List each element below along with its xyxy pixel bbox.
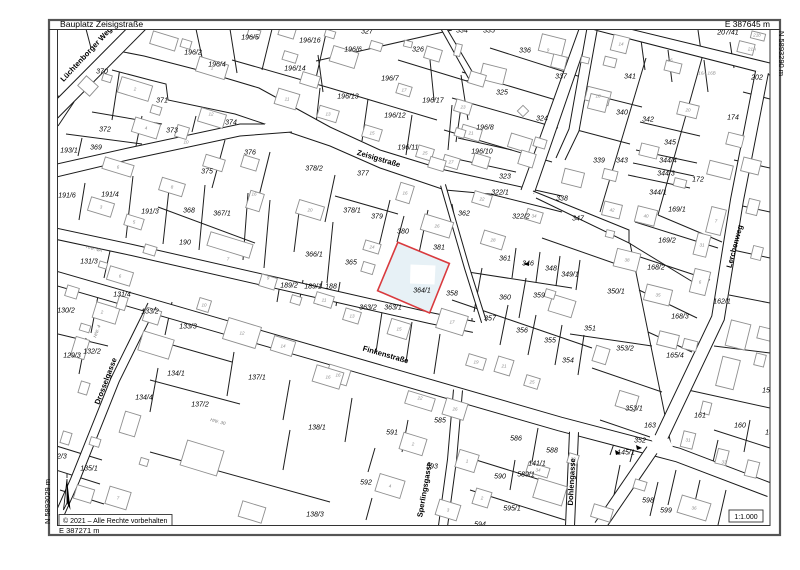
svg-text:38: 38 — [624, 258, 630, 263]
svg-text:376: 376 — [244, 150, 256, 157]
svg-text:138/1: 138/1 — [308, 425, 326, 432]
svg-text:169/1: 169/1 — [668, 207, 686, 214]
svg-text:16A 16B: 16A 16B — [698, 71, 715, 76]
svg-text:163: 163 — [644, 423, 656, 430]
svg-text:160: 160 — [734, 423, 746, 430]
svg-text:196/11: 196/11 — [398, 145, 419, 152]
svg-text:336: 336 — [519, 48, 531, 55]
svg-text:1: 1 — [211, 66, 214, 71]
svg-text:131/4: 131/4 — [113, 292, 131, 299]
svg-text:11: 11 — [322, 298, 327, 303]
svg-text:598: 598 — [642, 498, 654, 505]
svg-text:31: 31 — [685, 438, 691, 443]
svg-text:25: 25 — [528, 380, 535, 385]
svg-text:15: 15 — [396, 327, 402, 332]
svg-text:21b: 21b — [752, 33, 761, 38]
svg-text:168/2: 168/2 — [647, 265, 665, 272]
svg-text:338: 338 — [556, 196, 568, 203]
svg-text:196/14: 196/14 — [284, 66, 306, 73]
svg-text:585: 585 — [434, 418, 446, 425]
svg-text:161: 161 — [694, 413, 706, 420]
svg-text:341: 341 — [624, 74, 636, 81]
svg-text:189/2: 189/2 — [280, 283, 298, 290]
svg-text:589/1: 589/1 — [517, 472, 535, 479]
svg-text:14: 14 — [280, 344, 286, 349]
svg-text:362: 362 — [458, 211, 470, 218]
svg-text:134/4: 134/4 — [135, 395, 153, 402]
svg-text:373: 373 — [166, 128, 178, 135]
svg-text:© 2021 – Alle Rechte vorbehalt: © 2021 – Alle Rechte vorbehalten — [63, 517, 168, 525]
svg-text:8: 8 — [171, 185, 174, 190]
svg-text:190: 190 — [179, 240, 191, 247]
svg-text:2: 2 — [100, 310, 104, 315]
svg-text:349/1: 349/1 — [561, 272, 579, 279]
svg-text:19: 19 — [473, 360, 479, 365]
svg-text:322/2: 322/2 — [512, 214, 530, 221]
svg-text:196/2: 196/2 — [184, 50, 202, 57]
svg-text:196/16: 196/16 — [299, 38, 321, 45]
svg-text:22: 22 — [478, 197, 485, 202]
svg-text:12: 12 — [239, 331, 245, 336]
svg-text:351: 351 — [584, 326, 596, 333]
svg-text:343: 343 — [616, 158, 628, 165]
svg-text:344/1: 344/1 — [649, 190, 667, 197]
svg-text:E 387271 m: E 387271 m — [59, 526, 99, 535]
svg-text:2: 2 — [133, 87, 137, 92]
svg-text:Bauplatz Zeisigstraße: Bauplatz Zeisigstraße — [60, 19, 143, 29]
svg-text:133/3: 133/3 — [179, 324, 197, 331]
svg-text:354: 354 — [562, 358, 574, 365]
svg-text:16: 16 — [335, 373, 341, 378]
svg-text:40: 40 — [643, 214, 649, 219]
svg-text:13: 13 — [349, 314, 355, 319]
svg-text:137/1: 137/1 — [248, 375, 266, 382]
svg-text:168/3: 168/3 — [671, 314, 689, 321]
svg-text:366/1: 366/1 — [305, 252, 323, 259]
svg-text:323: 323 — [499, 174, 511, 181]
svg-text:353/1: 353/1 — [625, 406, 643, 413]
svg-text:16: 16 — [325, 375, 331, 380]
svg-text:586: 586 — [510, 436, 522, 443]
svg-text:20: 20 — [684, 108, 691, 113]
svg-text:592: 592 — [360, 480, 372, 487]
svg-text:N 5893290 m: N 5893290 m — [777, 31, 786, 76]
svg-text:23: 23 — [459, 105, 466, 110]
svg-text:372: 372 — [99, 127, 111, 134]
svg-text:368: 368 — [183, 208, 195, 215]
svg-text:134/1: 134/1 — [167, 371, 185, 378]
svg-text:9: 9 — [547, 48, 550, 53]
svg-text:191/3: 191/3 — [141, 209, 159, 216]
svg-text:17: 17 — [449, 320, 455, 325]
svg-text:10: 10 — [183, 140, 189, 145]
svg-text:21A: 21A — [747, 47, 756, 52]
svg-text:196/13: 196/13 — [337, 94, 359, 101]
svg-text:337: 337 — [555, 74, 568, 81]
svg-text:370: 370 — [96, 69, 108, 76]
svg-text:196/5: 196/5 — [241, 35, 259, 42]
svg-text:22: 22 — [416, 396, 423, 401]
svg-text:162/1: 162/1 — [713, 299, 731, 306]
svg-text:34: 34 — [531, 214, 537, 219]
svg-text:174: 174 — [727, 115, 739, 122]
svg-text:381: 381 — [433, 245, 445, 252]
svg-text:365: 365 — [345, 260, 357, 267]
svg-text:26: 26 — [433, 224, 440, 229]
svg-text:6: 6 — [699, 280, 702, 285]
svg-text:1: 1 — [466, 459, 469, 464]
svg-text:21: 21 — [500, 364, 507, 369]
svg-text:6: 6 — [117, 165, 120, 170]
svg-text:12: 12 — [208, 112, 214, 117]
svg-text:21: 21 — [467, 131, 474, 136]
svg-text:9: 9 — [267, 276, 270, 281]
svg-text:369: 369 — [90, 145, 102, 152]
svg-text:188: 188 — [325, 284, 337, 291]
svg-text:348: 348 — [545, 266, 557, 273]
svg-text:196/12: 196/12 — [384, 113, 406, 120]
svg-text:340: 340 — [616, 110, 628, 117]
svg-text:2: 2 — [411, 442, 415, 447]
svg-text:5: 5 — [133, 220, 136, 225]
svg-text:193/1: 193/1 — [60, 148, 78, 155]
svg-text:28: 28 — [489, 238, 496, 243]
svg-text:361: 361 — [499, 256, 511, 263]
svg-text:352: 352 — [634, 438, 646, 445]
svg-text:130/2: 130/2 — [57, 308, 75, 315]
svg-text:24: 24 — [368, 245, 375, 250]
svg-text:7: 7 — [117, 496, 120, 501]
svg-text:131/3: 131/3 — [80, 259, 98, 266]
svg-text:191/4: 191/4 — [101, 192, 119, 199]
svg-text:339: 339 — [593, 158, 605, 165]
svg-text:359: 359 — [533, 293, 545, 300]
svg-text:189/1: 189/1 — [304, 284, 322, 291]
svg-text:16: 16 — [667, 58, 673, 63]
svg-text:20: 20 — [306, 208, 313, 213]
svg-text:15: 15 — [369, 131, 375, 136]
svg-text:18: 18 — [595, 94, 601, 99]
svg-text:371: 371 — [156, 98, 168, 105]
svg-text:324: 324 — [536, 116, 548, 123]
svg-text:353/2: 353/2 — [616, 346, 634, 353]
svg-text:N 5893029 m: N 5893029 m — [43, 479, 52, 524]
svg-text:141/1: 141/1 — [528, 461, 546, 468]
svg-text:17: 17 — [401, 88, 407, 93]
svg-text:1:1.000: 1:1.000 — [734, 514, 757, 521]
svg-text:322/1: 322/1 — [491, 190, 509, 197]
svg-text:172: 172 — [692, 177, 704, 184]
svg-text:345: 345 — [664, 140, 676, 147]
svg-text:3: 3 — [100, 205, 103, 210]
svg-text:34: 34 — [535, 468, 541, 473]
svg-text:342: 342 — [642, 117, 654, 124]
svg-text:4: 4 — [389, 484, 392, 489]
svg-text:16: 16 — [402, 191, 408, 196]
svg-text:31: 31 — [699, 243, 705, 248]
svg-text:375: 375 — [201, 169, 213, 176]
svg-text:363/1: 363/1 — [384, 305, 402, 312]
svg-text:356: 356 — [516, 328, 528, 335]
svg-text:11: 11 — [285, 97, 290, 102]
svg-text:325: 325 — [496, 90, 508, 97]
svg-text:135/1: 135/1 — [80, 466, 98, 473]
svg-text:3: 3 — [447, 508, 450, 513]
svg-text:364/1: 364/1 — [413, 288, 431, 295]
svg-text:133/2: 133/2 — [141, 309, 159, 316]
svg-text:202: 202 — [750, 75, 763, 82]
svg-text:165/4: 165/4 — [666, 353, 684, 360]
svg-text:2: 2 — [480, 496, 484, 501]
svg-text:132/2: 132/2 — [83, 349, 101, 356]
svg-text:36: 36 — [691, 506, 697, 511]
svg-text:196/17: 196/17 — [422, 98, 445, 105]
svg-text:374: 374 — [225, 120, 237, 127]
svg-text:357: 357 — [484, 316, 497, 323]
svg-text:4: 4 — [145, 126, 148, 131]
svg-text:27: 27 — [447, 160, 454, 165]
svg-text:590: 590 — [494, 474, 506, 481]
svg-text:344/4: 344/4 — [659, 158, 677, 165]
svg-text:7: 7 — [715, 219, 718, 224]
svg-text:35: 35 — [655, 293, 661, 298]
svg-text:378/1: 378/1 — [343, 208, 361, 215]
svg-text:191/6: 191/6 — [58, 193, 76, 200]
svg-text:355: 355 — [544, 338, 556, 345]
svg-text:377: 377 — [357, 171, 370, 178]
svg-text:15: 15 — [762, 388, 770, 395]
svg-text:137/2: 137/2 — [191, 402, 209, 409]
svg-text:26: 26 — [451, 407, 458, 412]
svg-text:358: 358 — [446, 291, 458, 298]
svg-text:169/2: 169/2 — [658, 238, 676, 245]
svg-text:6: 6 — [119, 274, 122, 279]
svg-text:347: 347 — [572, 216, 585, 223]
svg-text:196/8: 196/8 — [476, 125, 494, 132]
svg-text:14: 14 — [618, 42, 624, 47]
svg-text:42: 42 — [609, 208, 615, 213]
svg-text:367/1: 367/1 — [213, 211, 231, 218]
svg-text:129/3: 129/3 — [63, 353, 81, 360]
svg-text:196/7: 196/7 — [381, 76, 400, 83]
svg-text:33: 33 — [721, 460, 727, 465]
svg-text:196/6: 196/6 — [344, 47, 362, 54]
svg-text:16: 16 — [251, 192, 257, 197]
svg-text:588: 588 — [546, 448, 558, 455]
svg-text:591: 591 — [386, 430, 398, 437]
svg-text:350/1: 350/1 — [607, 289, 625, 296]
svg-text:379: 379 — [371, 214, 383, 221]
svg-text:7: 7 — [227, 257, 230, 262]
svg-text:326: 326 — [412, 47, 424, 54]
svg-text:363/2: 363/2 — [359, 305, 377, 312]
svg-text:360: 360 — [499, 295, 511, 302]
svg-text:344/3: 344/3 — [657, 171, 675, 178]
svg-text:595/1: 595/1 — [503, 506, 521, 513]
svg-text:380: 380 — [397, 229, 409, 236]
svg-text:138/3: 138/3 — [306, 512, 324, 519]
svg-text:13: 13 — [325, 112, 331, 117]
svg-text:E 387645 m: E 387645 m — [725, 19, 770, 29]
svg-text:25: 25 — [421, 151, 428, 156]
svg-text:378/2: 378/2 — [305, 166, 323, 173]
svg-text:10: 10 — [201, 303, 207, 308]
svg-text:196/10: 196/10 — [471, 149, 493, 156]
svg-text:207/41: 207/41 — [716, 30, 739, 37]
svg-text:599: 599 — [660, 508, 672, 515]
